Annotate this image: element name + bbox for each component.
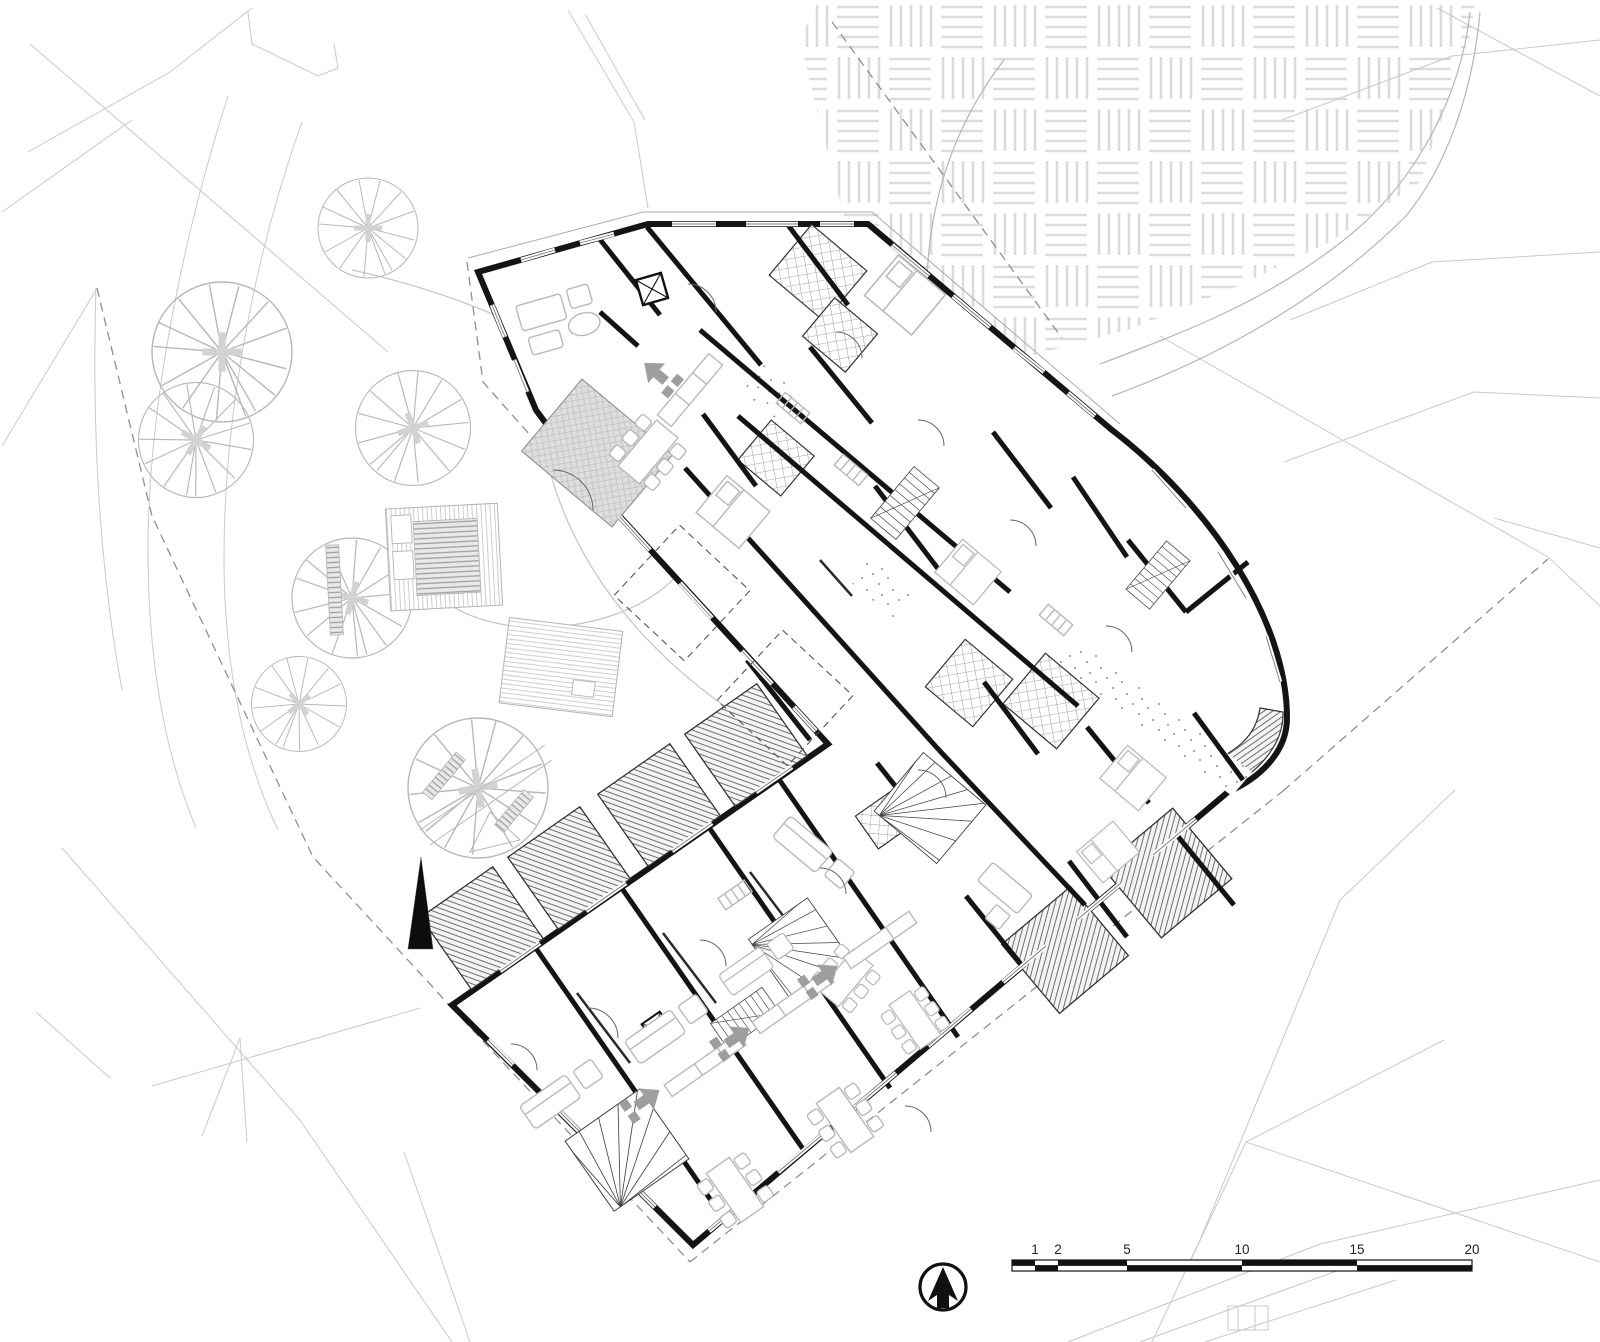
fallen-branches: [420, 745, 552, 852]
existing-building-1: [385, 503, 502, 611]
scale-label-2: 2: [1054, 1242, 1062, 1257]
scale-label-10: 10: [1234, 1242, 1249, 1257]
north-arrow: [920, 1264, 966, 1310]
scale-label-5: 5: [1123, 1242, 1131, 1257]
building-floor-plan: [421, 212, 1287, 1245]
site-spire-marker: [408, 857, 433, 949]
existing-buildings: [326, 503, 623, 717]
floor-plan-drawing: 1 2 5 10 15 20: [0, 0, 1600, 1342]
scale-label-1: 1: [1031, 1242, 1039, 1257]
scale-label-20: 20: [1464, 1242, 1479, 1257]
scale-bar: 1 2 5 10 15 20: [1012, 1242, 1480, 1271]
scale-label-15: 15: [1349, 1242, 1364, 1257]
existing-building-2: [499, 617, 623, 716]
site-plan-canvas: 1 2 5 10 15 20: [0, 0, 1600, 1342]
existing-shed-strip: [326, 545, 344, 636]
